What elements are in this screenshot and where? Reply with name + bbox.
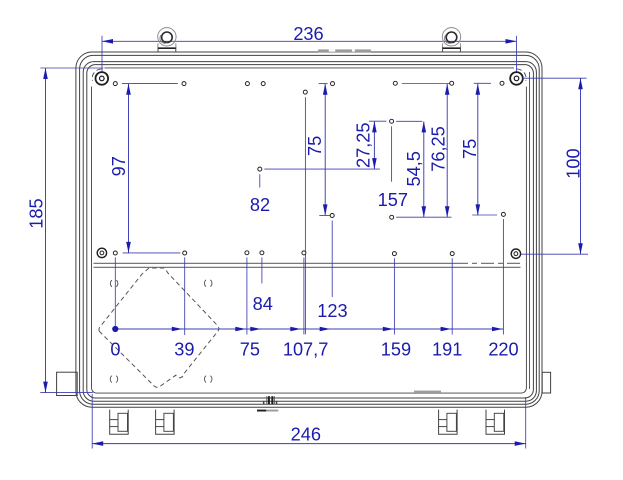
svg-text:107,7: 107,7 bbox=[283, 340, 329, 360]
svg-text:54,5: 54,5 bbox=[404, 151, 424, 186]
svg-text:75: 75 bbox=[305, 136, 325, 156]
svg-text:159: 159 bbox=[381, 340, 411, 360]
svg-text:220: 220 bbox=[488, 340, 518, 360]
svg-text:0: 0 bbox=[110, 340, 120, 360]
svg-text:246: 246 bbox=[291, 424, 321, 444]
svg-text:123: 123 bbox=[317, 301, 347, 321]
svg-text:97: 97 bbox=[109, 156, 129, 176]
svg-text:75: 75 bbox=[240, 340, 260, 360]
svg-text:39: 39 bbox=[174, 340, 194, 360]
svg-text:82: 82 bbox=[250, 195, 270, 215]
svg-text:75: 75 bbox=[460, 139, 480, 159]
svg-text:236: 236 bbox=[293, 24, 323, 44]
svg-text:76,25: 76,25 bbox=[428, 126, 448, 172]
svg-text:191: 191 bbox=[432, 340, 462, 360]
svg-text:27,25: 27,25 bbox=[354, 122, 374, 168]
svg-text:84: 84 bbox=[253, 294, 273, 314]
svg-text:185: 185 bbox=[27, 198, 47, 228]
svg-text:157: 157 bbox=[378, 190, 408, 210]
svg-text:100: 100 bbox=[563, 148, 583, 178]
